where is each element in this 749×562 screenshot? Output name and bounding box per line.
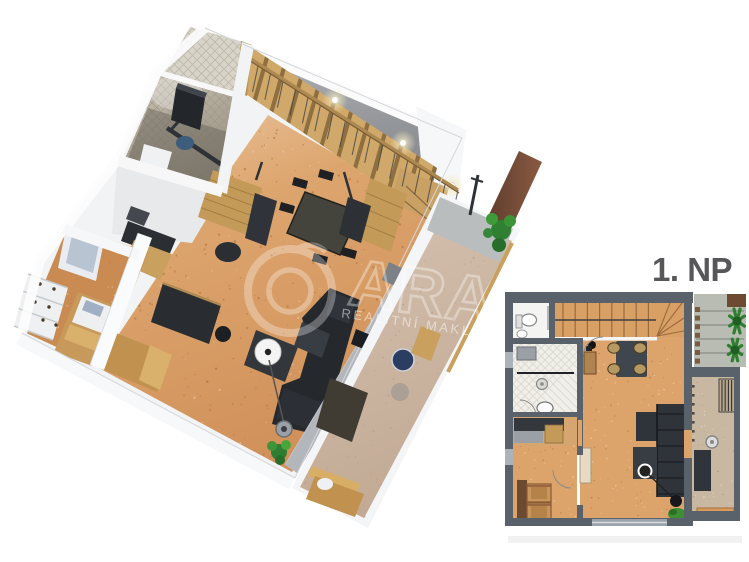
svg-text:1. NP: 1. NP [652,251,732,288]
